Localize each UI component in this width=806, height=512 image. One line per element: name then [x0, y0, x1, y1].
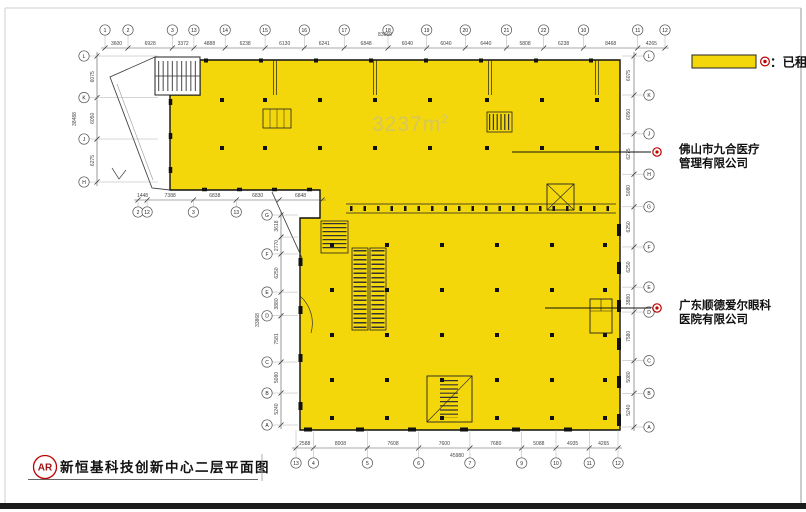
dim-label: 2588 [299, 441, 310, 447]
dim-label: 6250 [274, 267, 280, 278]
dim-label: 7581 [274, 333, 280, 344]
dim-label: 7608 [387, 441, 398, 447]
column-dot [263, 98, 267, 102]
dim-label: 6838 [209, 193, 220, 199]
column-dot [603, 416, 607, 420]
grid-bubble-label: 3 [171, 28, 174, 34]
dim-label: 6238 [558, 41, 569, 47]
grid-bubble-label: F [265, 252, 268, 258]
dim-label: 5080 [626, 185, 632, 196]
dim-label: 5240 [626, 404, 632, 415]
grid-bubble-label: 3 [192, 210, 195, 216]
grid-bubble-label: 2 [137, 210, 140, 216]
grid-bubble-label: 17 [341, 28, 347, 34]
dim-label: 7600 [439, 441, 450, 447]
stair-top-left [155, 57, 200, 95]
dim-label: 6250 [626, 261, 632, 272]
grid-bubble-label: C [647, 359, 651, 365]
dim-label: 3880 [626, 294, 632, 305]
grid-bubble-label: 15 [262, 28, 268, 34]
grid-bubble-label: 11 [635, 28, 640, 34]
column-dot [318, 146, 322, 150]
dim-label: 6050 [90, 113, 96, 124]
overall-dim-label: 38488 [72, 112, 78, 126]
overall-dim-label: 45980 [450, 453, 464, 459]
column-dot [495, 288, 499, 292]
tenant-1-name-line2: 管理有限公司 [679, 156, 748, 170]
rented-marker-icon [653, 304, 661, 312]
dim-label: 3600 [111, 41, 122, 47]
drawing-sheet: 1231314151617181920212210111236006928337… [0, 0, 806, 512]
column-dot [540, 146, 544, 150]
dim-label: 7680 [490, 441, 501, 447]
column-dot [603, 243, 607, 247]
grid-bubble-label: 4 [312, 461, 315, 467]
column-dot [440, 288, 444, 292]
dim-label: 6440 [480, 41, 491, 47]
column-dot [550, 416, 554, 420]
dim-label: 8468 [605, 41, 616, 47]
column-dot [495, 333, 499, 337]
grid-bubble-label: 16 [302, 28, 308, 34]
area-label: 3237m2 [372, 112, 449, 136]
column-dot [385, 288, 389, 292]
grid-bubble-label: 22 [541, 28, 547, 34]
grid-bubble-label: 21 [504, 28, 510, 34]
dim-label: 2770 [274, 240, 280, 251]
grid-bubble-label: 13 [293, 461, 299, 467]
column-dot [595, 146, 599, 150]
grid-bubble-label: D [265, 314, 269, 320]
floor-plan-svg: 1231314151617181920212210111236006928337… [0, 0, 806, 512]
dim-label: 4265 [598, 441, 609, 447]
grid-bubble-label: 13 [233, 210, 239, 216]
dim-label: 6238 [240, 41, 251, 47]
column-dot [440, 416, 444, 420]
grid-bubble-label: H [82, 180, 86, 186]
column-dot [540, 98, 544, 102]
dim-label: 3880 [274, 298, 280, 309]
dim-label: 6241 [319, 41, 330, 47]
grid-bubble-label: 12 [615, 461, 621, 467]
column-dot [373, 98, 377, 102]
tenant-1-name-line1: 佛山市九合医疗 [678, 142, 760, 156]
grid-bubble-label: 1 [104, 28, 107, 34]
dim-label: 6275 [626, 148, 632, 159]
rented-marker-icon [653, 148, 661, 156]
dim-label: 6250 [626, 221, 632, 232]
dim-label: 6275 [90, 155, 96, 166]
grid-bubble-label: 6 [417, 461, 420, 467]
column-dot [603, 378, 607, 382]
dim-label: 5808 [520, 41, 531, 47]
grid-bubble-label: 9 [520, 461, 523, 467]
column-dot [373, 146, 377, 150]
column-dot [428, 146, 432, 150]
dim-label: 4888 [204, 41, 215, 47]
column-dot [330, 288, 334, 292]
grid-bubble-label: 10 [581, 28, 587, 34]
legend: ：已租 [692, 55, 806, 70]
dim-label: 4265 [646, 41, 657, 47]
column-dot [603, 333, 607, 337]
column-dot [595, 98, 599, 102]
overall-dim-label: 33868 [255, 313, 261, 327]
dim-label: 6075 [90, 71, 96, 82]
dim-label: 6040 [402, 41, 413, 47]
dim-label: 7388 [165, 193, 176, 199]
column-dot [495, 243, 499, 247]
column-dot [220, 98, 224, 102]
dim-label: 6928 [145, 41, 156, 47]
dim-label: 6130 [279, 41, 290, 47]
column-dot [550, 378, 554, 382]
column-dot [550, 288, 554, 292]
dim-label: 6050 [626, 109, 632, 120]
grid-bubble-label: L [83, 54, 86, 60]
page-border-bottom [0, 503, 806, 509]
dim-label: 6848 [295, 193, 306, 199]
grid-bubble-label: F [647, 245, 650, 251]
grid-bubble-label: 10 [553, 461, 559, 467]
column-dot [428, 98, 432, 102]
dim-label: 5080 [626, 371, 632, 382]
column-dot [495, 378, 499, 382]
dim-label: 6040 [440, 41, 451, 47]
grid-bubble-label: C [265, 360, 269, 366]
grid-bubble-label: 14 [222, 28, 228, 34]
column-dot [263, 146, 267, 150]
dim-label: 5240 [274, 403, 280, 414]
column-dot [440, 333, 444, 337]
title-block: AR 新恒基科技创新中心二层平面图 [28, 454, 270, 481]
column-dot [485, 146, 489, 150]
column-dot [495, 416, 499, 420]
legend-label: ：已租 [770, 56, 806, 70]
column-dot [385, 243, 389, 247]
dim-label: 6848 [361, 41, 372, 47]
grid-bubble-label: 20 [463, 28, 469, 34]
column-dot [385, 378, 389, 382]
grid-bubble-label: 13 [191, 28, 197, 34]
dim-label: 7580 [626, 331, 632, 342]
rented-marker-icon [761, 57, 770, 66]
column-dot [603, 288, 607, 292]
drawing-title: 新恒基科技创新中心二层平面图 [60, 459, 270, 475]
column-dot [330, 243, 334, 247]
dim-label: 6075 [626, 70, 632, 81]
grid-bubble-label: L [648, 54, 651, 60]
column-dot [550, 243, 554, 247]
column-dot [550, 333, 554, 337]
column-dot [385, 416, 389, 420]
column-dot [318, 98, 322, 102]
tenant-2-name-line2: 医院有限公司 [679, 312, 748, 326]
dim-label: 5080 [274, 372, 280, 383]
grid-bubble-label: G [265, 213, 269, 219]
grid-bubble-label: G [647, 205, 651, 211]
column-dot [220, 146, 224, 150]
dim-label: 8008 [335, 441, 346, 447]
column-dot [330, 416, 334, 420]
grid-bubble-label: 19 [424, 28, 430, 34]
dim-label: 1448 [137, 193, 148, 199]
dim-label: 3372 [178, 41, 189, 47]
column-dot [440, 243, 444, 247]
dim-label: 6830 [252, 193, 263, 199]
grid-bubble-label: 2 [127, 28, 130, 34]
column-dot [440, 378, 444, 382]
dim-label: 3618 [274, 220, 280, 231]
grid-bubble-label: D [647, 310, 651, 316]
column-dot [330, 378, 334, 382]
drawing-number: AR [38, 463, 53, 474]
grid-bubble-label: 7 [469, 461, 472, 467]
grid-bubble-label: 5 [366, 461, 369, 467]
dim-label: 4935 [567, 441, 578, 447]
dim-label: 5088 [533, 441, 544, 447]
grid-bubble-label: 11 [587, 461, 592, 467]
column-dot [385, 333, 389, 337]
column-dot [485, 98, 489, 102]
grid-bubble-label: H [647, 172, 651, 178]
column-dot [330, 333, 334, 337]
legend-swatch [692, 55, 756, 68]
overall-dim-label: 83660 [378, 32, 392, 38]
grid-bubble-label: 12 [662, 28, 668, 34]
tenant-2-name-line1: 广东顺德爱尔眼科 [679, 298, 771, 312]
grid-bubble-label: 12 [144, 210, 150, 216]
